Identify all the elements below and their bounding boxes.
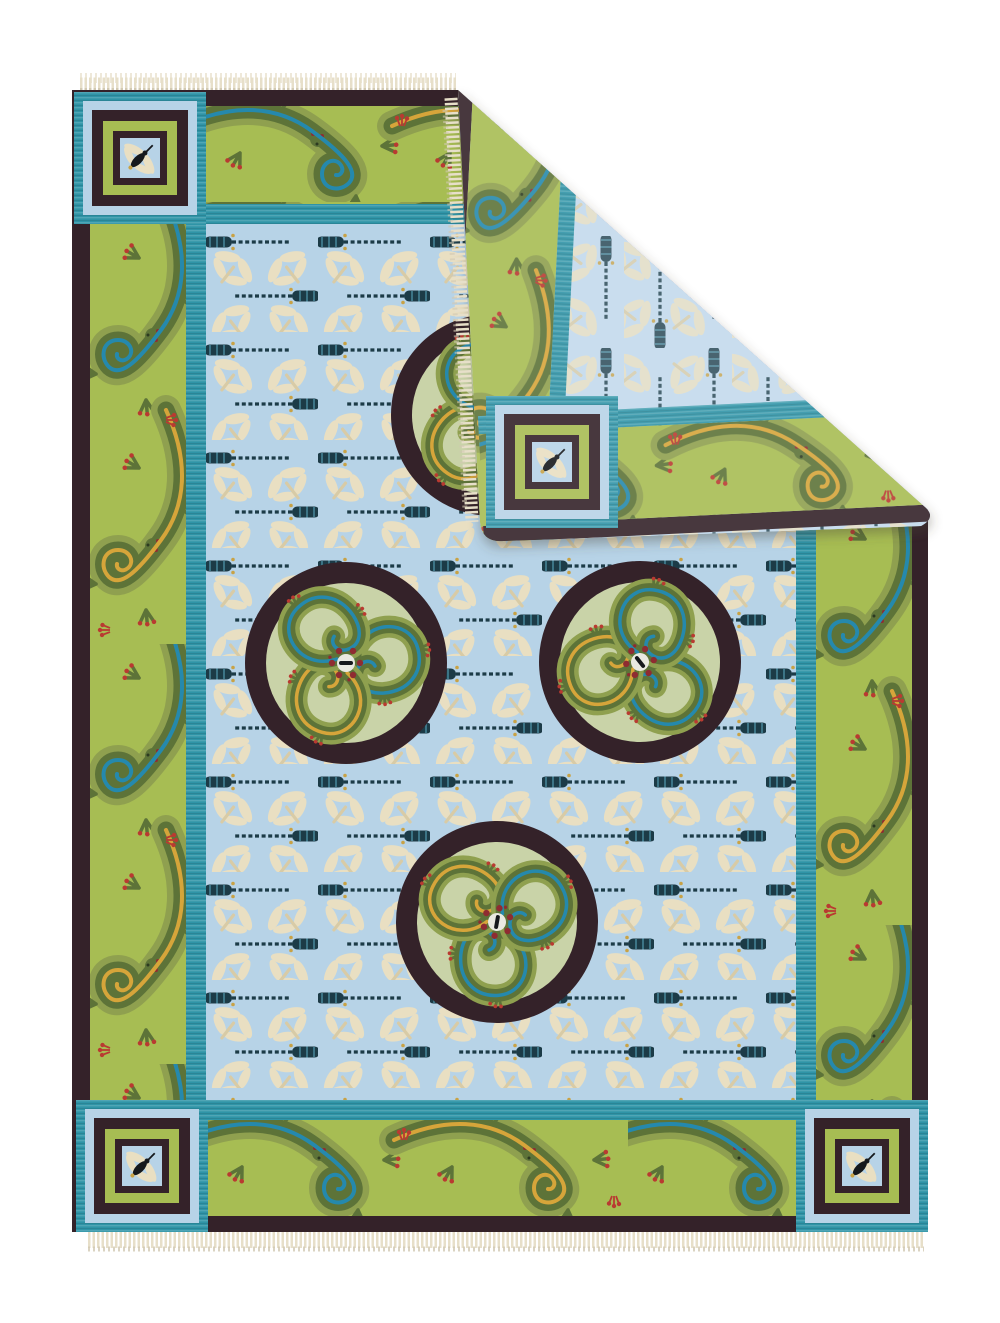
border-right <box>796 505 912 1100</box>
rug-canvas <box>0 0 1000 1323</box>
medallion-middle-left <box>245 562 447 764</box>
border-bottom <box>208 1100 796 1216</box>
rug-photograph <box>0 0 1000 1323</box>
border-left <box>90 224 206 1100</box>
corner-square-bottom-left <box>76 1100 208 1232</box>
corner-square-top-left <box>74 92 206 224</box>
corner-square-bottom-right <box>796 1100 928 1232</box>
